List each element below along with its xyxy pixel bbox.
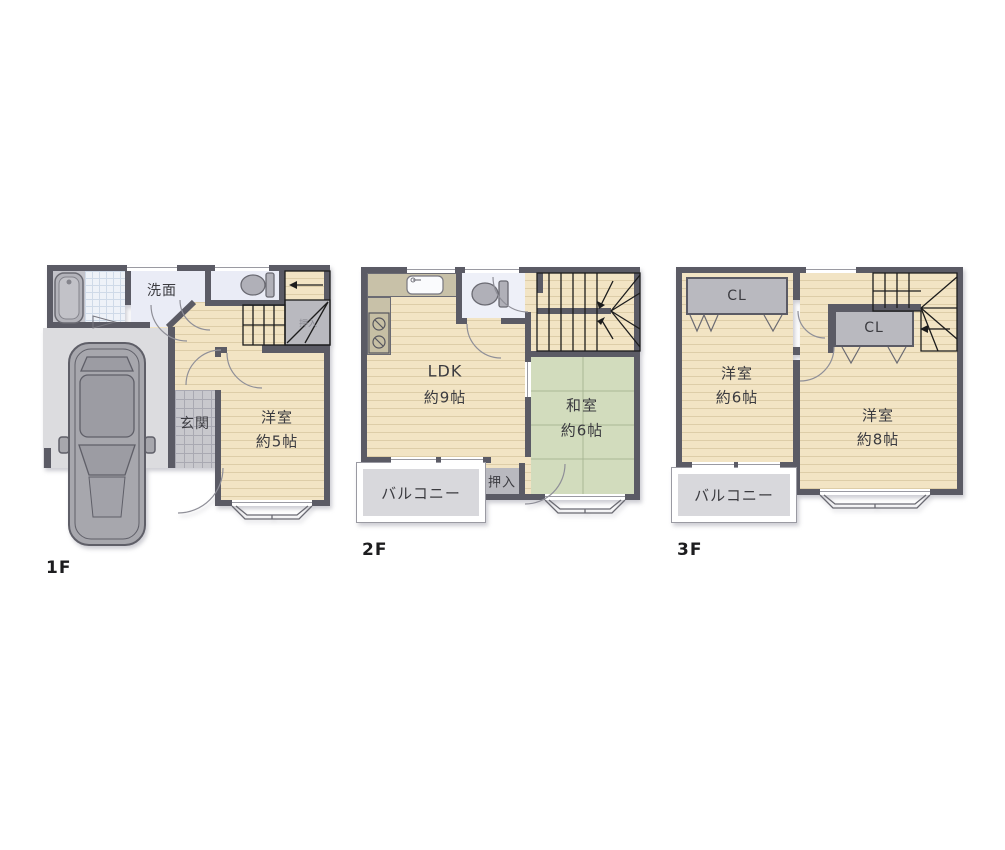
floor-tag-2f: 2F bbox=[362, 540, 387, 560]
entrance-label: 玄関 bbox=[180, 413, 210, 433]
balcony-label: バルコニー bbox=[381, 483, 461, 504]
bay-window bbox=[820, 495, 930, 508]
bedroom-left-label: 洋室 bbox=[721, 363, 753, 384]
bedroom-label: 洋室 bbox=[261, 407, 293, 428]
staircase bbox=[873, 273, 957, 351]
japanese-room-size-label: 約6帖 bbox=[561, 420, 604, 441]
staircase bbox=[537, 273, 640, 351]
floor-2f-plan: LDK 約9帖 和室 約6帖 押入 バルコニー bbox=[361, 267, 640, 503]
ldk-size-label: 約9帖 bbox=[424, 387, 467, 408]
bay-window bbox=[545, 500, 625, 513]
ldk-label: LDK bbox=[428, 362, 463, 381]
closet-left-label: CL bbox=[727, 288, 747, 304]
floorplan-canvas: 洗面 玄関 洋室 約5帖 押入 bbox=[0, 0, 1005, 850]
floor-tag-1f: 1F bbox=[46, 558, 71, 578]
car-icon bbox=[59, 343, 155, 545]
bedroom-size-label: 約5帖 bbox=[256, 431, 299, 452]
stair-closet-label: 押入 bbox=[299, 317, 317, 330]
oshiire-label: 押入 bbox=[488, 472, 516, 491]
bathtub-icon bbox=[55, 273, 83, 323]
bedroom-right-label: 洋室 bbox=[862, 405, 894, 426]
balcony-label: バルコニー bbox=[694, 485, 774, 506]
washroom-label: 洗面 bbox=[147, 280, 177, 300]
bedroom-left-size-label: 約6帖 bbox=[716, 387, 759, 408]
kitchen-sink-icon bbox=[407, 276, 443, 294]
floor-3f-plan: CL CL 洋室 約6帖 洋室 約8帖 バルコニー bbox=[676, 267, 963, 503]
bay-window bbox=[232, 506, 312, 519]
stove-icon bbox=[369, 313, 389, 353]
toilet-icon bbox=[472, 281, 508, 307]
door-arcs bbox=[151, 300, 262, 513]
bath-door-mark bbox=[93, 316, 115, 328]
japanese-room-label: 和室 bbox=[566, 395, 598, 416]
closet-right-label: CL bbox=[864, 320, 884, 336]
floor-tag-3f: 3F bbox=[677, 540, 702, 560]
toilet-icon bbox=[241, 273, 274, 297]
floor-1f-plan: 洗面 玄関 洋室 約5帖 押入 bbox=[47, 265, 330, 512]
bedroom-right-size-label: 約8帖 bbox=[857, 429, 900, 450]
door-arcs bbox=[798, 311, 834, 381]
